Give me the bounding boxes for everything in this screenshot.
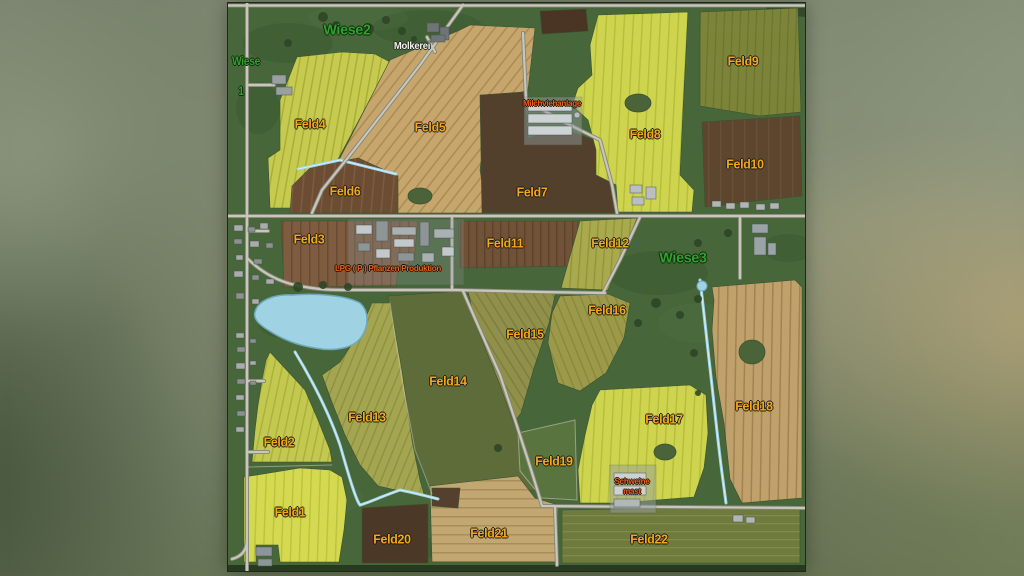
screenshot: Wiese 1 Wiese2 Wiese3 Molkerei Milchvieh… — [0, 0, 1024, 576]
field-feld9 — [700, 8, 801, 116]
field-feld22 — [562, 506, 800, 563]
field-feld10 — [702, 116, 802, 207]
map-graphics — [228, 3, 805, 571]
pond-small — [697, 281, 707, 291]
milchviehanlage-buildings — [524, 97, 582, 145]
farm-map: Wiese 1 Wiese2 Wiese3 Molkerei Milchvieh… — [228, 3, 805, 571]
lpg-buildings — [348, 219, 464, 285]
schweinemast-buildings — [610, 465, 656, 513]
field-feld11 — [458, 221, 578, 268]
dirt-patch-top — [540, 9, 588, 34]
field-feld20 — [362, 504, 428, 563]
